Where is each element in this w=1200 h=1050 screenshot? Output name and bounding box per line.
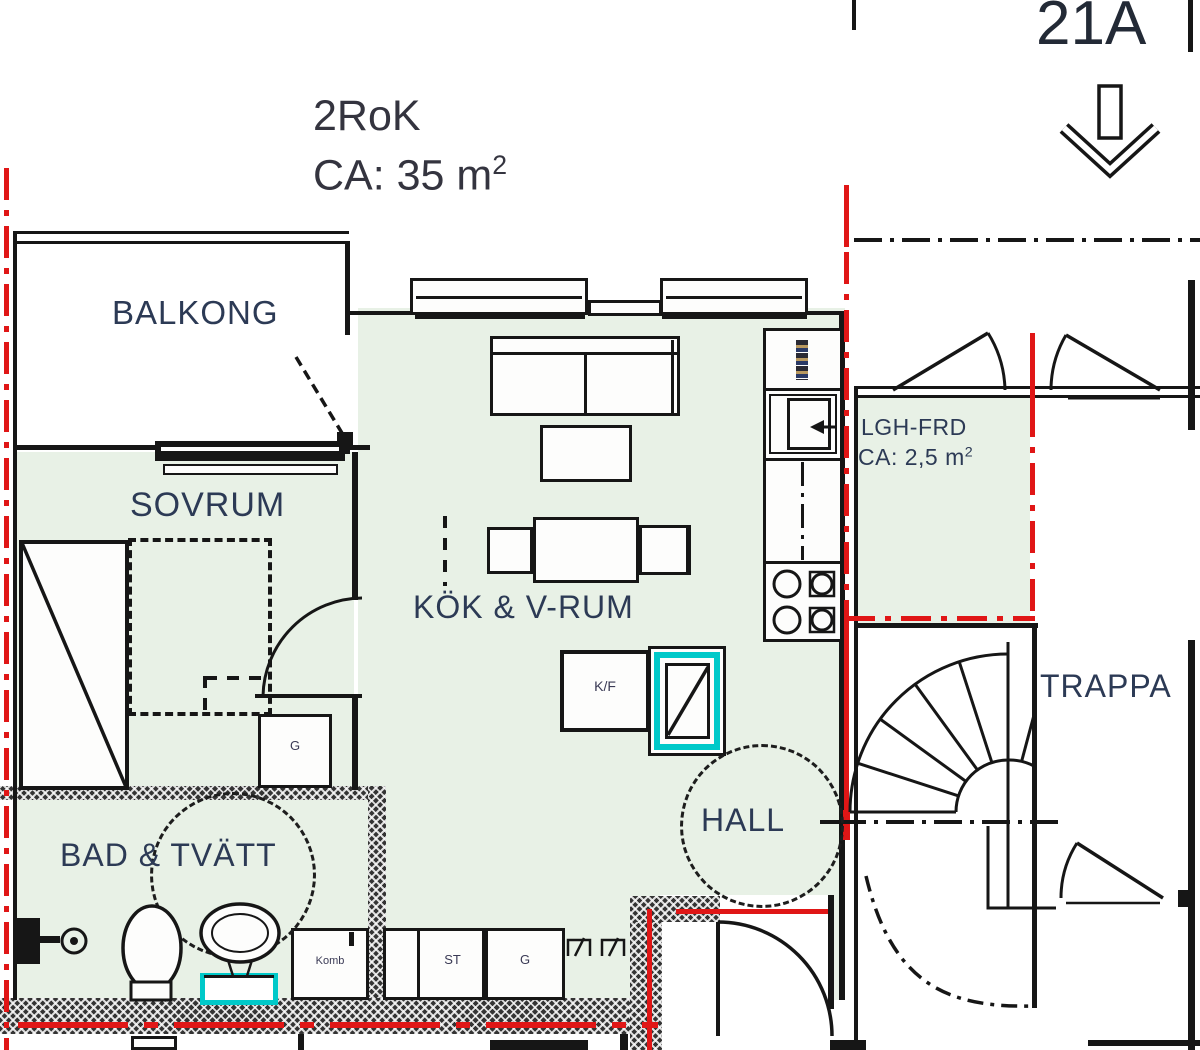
spiral-staircase [850, 642, 1056, 1006]
corridor-storage-doors [893, 333, 1160, 398]
unit-arrow-down-icon [1064, 86, 1156, 170]
shaft-diagonal [668, 667, 708, 735]
room-label-lgh-frd: LGH-FRD [861, 414, 967, 441]
shower-drain [14, 918, 86, 964]
lgh-frd-area-sup: 2 [965, 444, 973, 460]
washbasin [201, 904, 279, 976]
room-label-bad-tvatt: BAD & TVÄTT [60, 837, 277, 874]
plan-title-area: CA: 35 m2 [313, 150, 507, 200]
balcony-door-swing [296, 357, 345, 438]
plan-title-area-sup: 2 [492, 150, 507, 180]
stair-door-swing [1061, 843, 1190, 907]
floorplan-canvas: 2RoK CA: 35 m2 21A BALKONG SOVRUM KÖK & … [0, 0, 1200, 1050]
room-label-kok-vrum: KÖK & V-RUM [413, 589, 634, 626]
room-label-lgh-frd-area: CA: 2,5 m2 [858, 444, 973, 471]
fixture-label-komb: Komb [291, 955, 369, 967]
room-label-balkong: BALKONG [112, 294, 279, 332]
plan-title-type-text: 2RoK [313, 92, 421, 140]
plan-title-area-text: CA: 35 m [313, 151, 492, 199]
bedroom-door-swing [255, 598, 362, 696]
unit-number: 21A [1036, 0, 1146, 59]
lgh-frd-area-text: CA: 2,5 m [858, 444, 965, 470]
toilet [123, 906, 181, 1000]
room-label-trappa: TRAPPA [1040, 668, 1172, 705]
fixture-label-g-hall: G [485, 952, 565, 967]
stove-burners [774, 571, 834, 633]
fixture-label-g-bedroom: G [258, 738, 332, 753]
vent-marks [568, 938, 624, 956]
room-label-hall: HALL [701, 802, 785, 839]
wardrobe-diagonal [22, 543, 126, 787]
sink-faucet-icon [810, 420, 836, 434]
room-label-sovrum: SOVRUM [130, 486, 285, 525]
plan-title-type: 2RoK [313, 92, 421, 141]
fixture-label-kf: K/F [560, 678, 650, 694]
plan-linework-overlay [0, 0, 1200, 1050]
entry-door-swing [718, 922, 832, 1036]
fixture-label-st: ST [420, 952, 485, 967]
